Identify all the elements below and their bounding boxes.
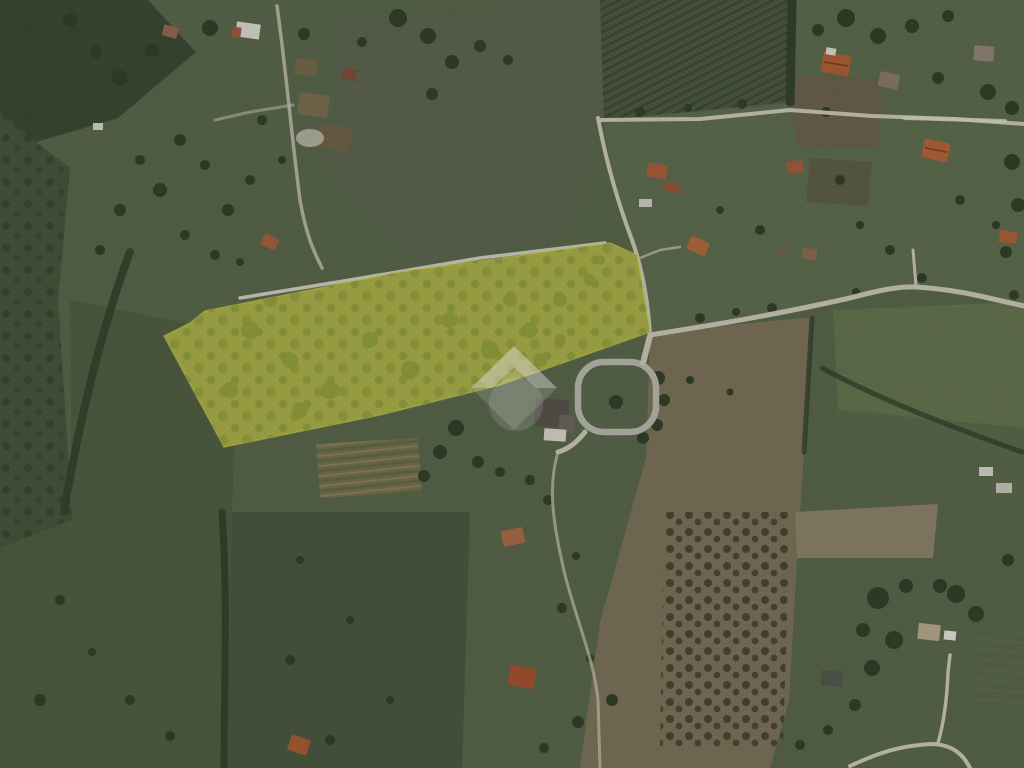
shed [996,483,1012,493]
listing-photo [0,0,1024,768]
shed [93,123,103,130]
house [786,160,804,174]
shed [979,467,993,476]
house [231,26,241,37]
shed [639,199,652,207]
villa-terrace [544,428,567,442]
house [998,230,1017,244]
shed [944,630,957,640]
satellite-map [0,0,1024,768]
house [973,45,994,62]
watermark-circle [489,377,543,431]
barn [821,670,844,686]
house [917,623,941,641]
